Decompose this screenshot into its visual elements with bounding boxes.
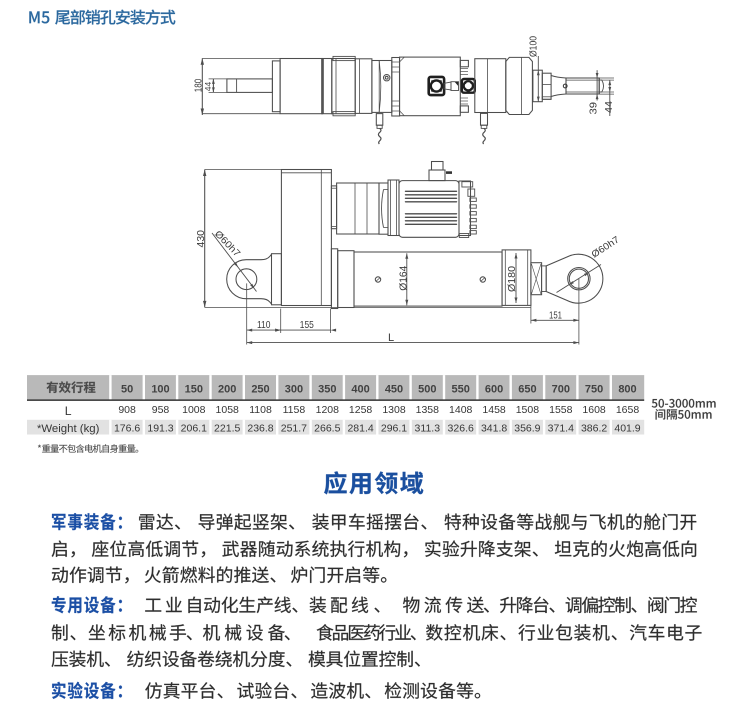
svg-text:296.1: 296.1 — [381, 422, 407, 434]
svg-text:356.9: 356.9 — [514, 422, 540, 434]
svg-text:L: L — [65, 404, 72, 418]
svg-text:341.8: 341.8 — [481, 422, 507, 434]
svg-text:1108: 1108 — [249, 404, 272, 416]
svg-text:1658: 1658 — [616, 404, 640, 416]
svg-text:1258: 1258 — [349, 404, 373, 416]
svg-text:191.3: 191.3 — [147, 422, 173, 434]
svg-text:221.5: 221.5 — [214, 422, 240, 434]
svg-text:110: 110 — [257, 320, 271, 331]
svg-text:39: 39 — [589, 102, 600, 115]
svg-text:400: 400 — [351, 383, 369, 395]
svg-text:180: 180 — [193, 79, 204, 93]
svg-text:1158: 1158 — [283, 404, 306, 416]
svg-text:281.4: 281.4 — [347, 422, 373, 434]
svg-text:200: 200 — [218, 383, 236, 395]
svg-text:50: 50 — [121, 383, 133, 395]
svg-text:L: L — [388, 332, 394, 344]
svg-text:Ø60h7: Ø60h7 — [212, 229, 242, 260]
svg-text:1558: 1558 — [549, 404, 573, 416]
svg-text:300: 300 — [285, 383, 303, 395]
svg-text:700: 700 — [552, 383, 570, 395]
svg-text:311.3: 311.3 — [415, 422, 441, 434]
svg-text:Ø164: Ø164 — [398, 265, 409, 290]
svg-text:250: 250 — [251, 383, 269, 395]
svg-text:266.5: 266.5 — [314, 422, 340, 434]
svg-text:1408: 1408 — [449, 404, 473, 416]
svg-text:44: 44 — [604, 101, 615, 113]
svg-text:Ø180: Ø180 — [507, 266, 518, 292]
svg-text:401.9: 401.9 — [614, 422, 640, 434]
svg-text:44: 44 — [204, 81, 213, 91]
svg-text:600: 600 — [485, 383, 503, 395]
svg-text:206.1: 206.1 — [181, 422, 207, 434]
svg-text:750: 750 — [585, 383, 603, 395]
svg-text:150: 150 — [185, 383, 203, 395]
svg-text:1008: 1008 — [182, 404, 206, 416]
svg-text:251.7: 251.7 — [281, 422, 307, 434]
svg-text:550: 550 — [452, 383, 470, 395]
svg-text:236.8: 236.8 — [247, 422, 273, 434]
svg-text:Ø100: Ø100 — [528, 36, 539, 57]
svg-text:371.4: 371.4 — [548, 422, 574, 434]
svg-text:151: 151 — [549, 311, 562, 322]
svg-text:1058: 1058 — [216, 404, 240, 416]
svg-text:1508: 1508 — [516, 404, 540, 416]
svg-text:958: 958 — [152, 404, 170, 416]
svg-text:500: 500 — [418, 383, 436, 395]
svg-text:386.2: 386.2 — [581, 422, 607, 434]
svg-text:1608: 1608 — [582, 404, 606, 416]
svg-text:430: 430 — [196, 230, 207, 248]
svg-text:908: 908 — [118, 404, 136, 416]
svg-text:1308: 1308 — [382, 404, 406, 416]
svg-text:350: 350 — [318, 383, 336, 395]
svg-text:1458: 1458 — [482, 404, 506, 416]
svg-text:155: 155 — [300, 320, 314, 331]
svg-text:*Weight (kg): *Weight (kg) — [37, 423, 100, 435]
svg-text:1208: 1208 — [316, 404, 340, 416]
svg-text:800: 800 — [618, 383, 636, 395]
svg-text:100: 100 — [151, 383, 169, 395]
svg-text:Ø60h7: Ø60h7 — [590, 234, 622, 260]
svg-text:176.6: 176.6 — [114, 422, 140, 434]
svg-text:650: 650 — [518, 383, 536, 395]
svg-text:1358: 1358 — [416, 404, 440, 416]
svg-text:450: 450 — [385, 383, 403, 395]
svg-text:326.6: 326.6 — [448, 422, 474, 434]
